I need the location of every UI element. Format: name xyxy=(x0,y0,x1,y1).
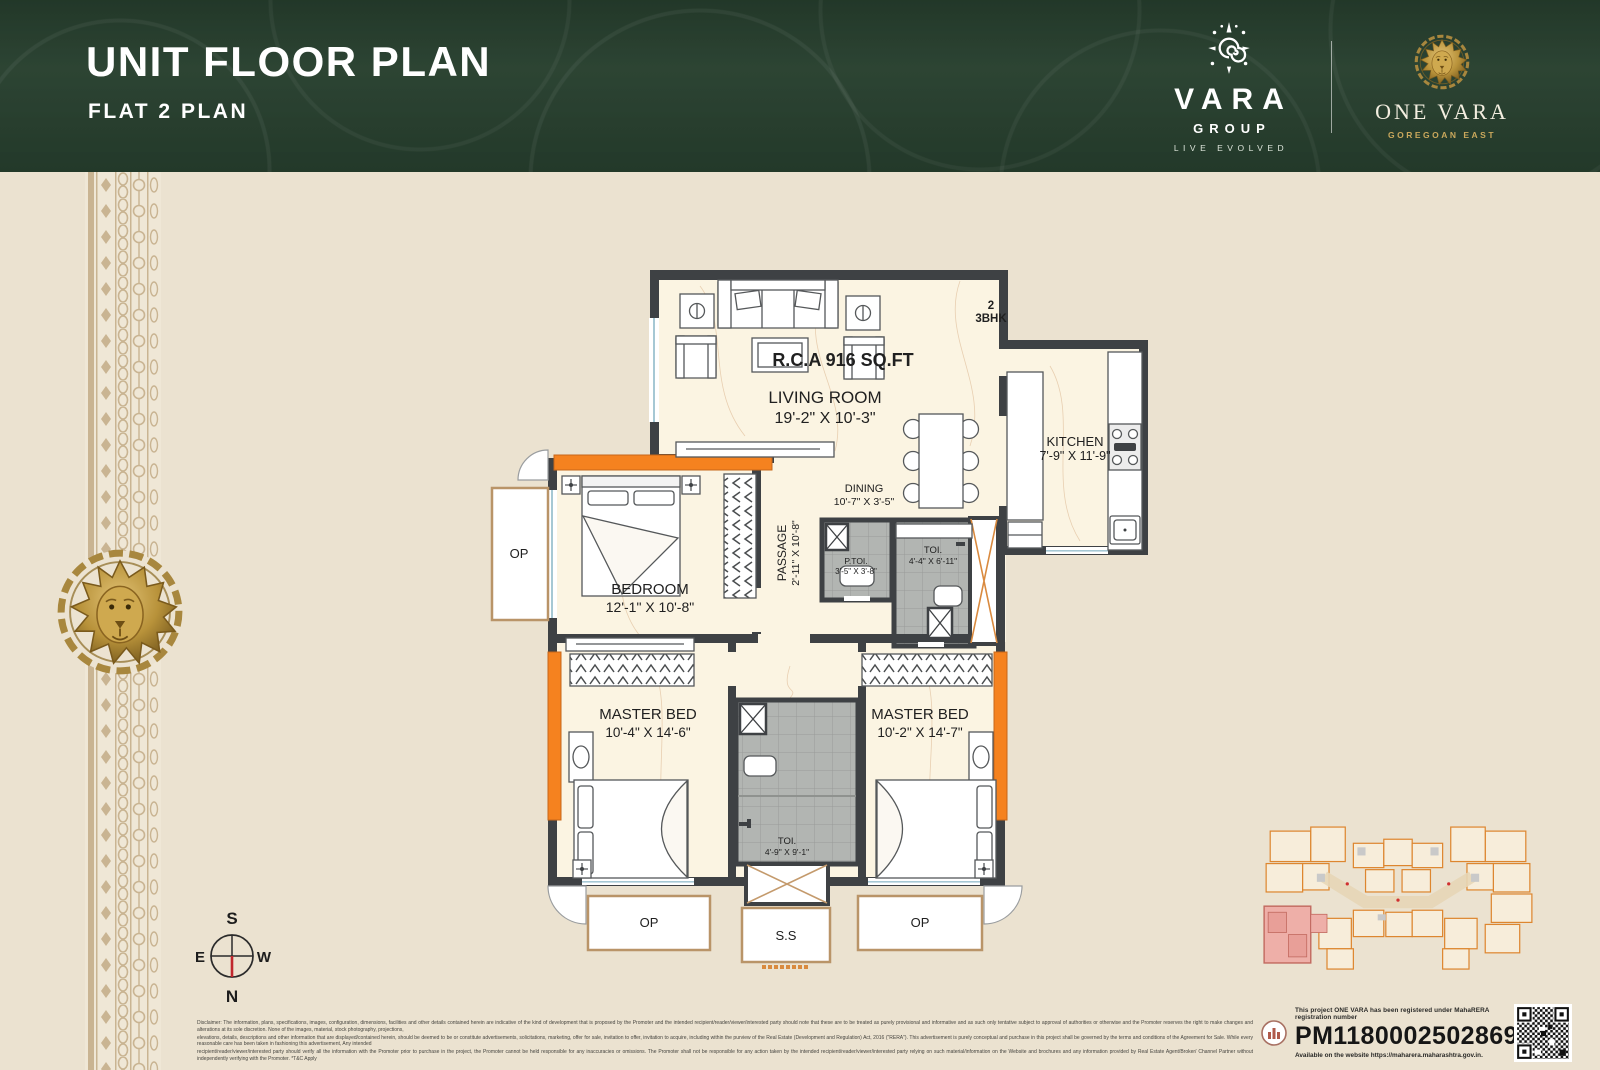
one-vara-name: ONE VARA xyxy=(1358,99,1526,125)
toi1-label: TOI. xyxy=(924,545,942,556)
compass-e: E xyxy=(195,949,205,966)
bedroom-furniture xyxy=(562,474,756,598)
ss-label: S.S xyxy=(776,928,797,943)
disclaimer-line-2: elevations, details, descriptions and ot… xyxy=(197,1035,1253,1048)
maharera-logo-icon xyxy=(1260,1019,1288,1047)
master2-dims: 10'-2" X 14'-7" xyxy=(877,725,962,740)
ptoi-label: P.TOI. xyxy=(844,556,867,566)
rera-website: Available on the website https://maharer… xyxy=(1295,1052,1507,1059)
op-left-label: OP xyxy=(640,915,659,930)
compass-s: S xyxy=(226,909,237,928)
living-room-dims: 19'-2" X 10'-3" xyxy=(774,410,875,427)
living-room-label: LIVING ROOM xyxy=(768,388,881,407)
vara-group-label: GROUP xyxy=(1153,121,1305,136)
op-right-label: OP xyxy=(911,915,930,930)
unit-type-label: 3BHK xyxy=(975,313,1007,325)
disclaimer-line-3: recipient/reader/viewer/interested party… xyxy=(197,1049,1253,1062)
unit-number-label: 2 xyxy=(988,300,994,312)
vara-spiral-icon xyxy=(1200,20,1258,76)
one-vara-logo: ONE VARA GOREGOAN EAST xyxy=(1358,34,1526,140)
disclaimer-line-1: Disclaimer: The information, plans, spec… xyxy=(197,1020,1253,1033)
brochure-page: UNIT FLOOR PLAN FLAT 2 PLAN VARA GROUP L… xyxy=(0,0,1600,1070)
sofa xyxy=(718,280,838,328)
master1-dims: 10'-4" X 14'-6" xyxy=(605,725,690,740)
rera-text-block: This project ONE VARA has been registere… xyxy=(1295,1007,1507,1059)
lion-medallion-icon xyxy=(1414,34,1470,90)
op-balcony-label: OP xyxy=(510,546,529,561)
side-table-left xyxy=(680,294,714,328)
passage-dims: 2'-11" X 10'-8" xyxy=(790,520,802,586)
master1-label: MASTER BED xyxy=(599,706,697,723)
page-subtitle: FLAT 2 PLAN xyxy=(88,100,491,124)
compass: S N E W xyxy=(190,906,274,1006)
toi1-dims: 4'-4" X 6'-11" xyxy=(909,556,957,566)
vara-name: VARA xyxy=(1153,83,1305,117)
floor-plan: 2 3BHK R.C.A 916 SQ.FT LIVING ROOM 19'-2… xyxy=(490,266,1150,978)
vara-tagline: LIVE EVOLVED xyxy=(1153,143,1305,153)
compass-n: N xyxy=(226,987,238,1006)
page-title: UNIT FLOOR PLAN xyxy=(86,38,491,86)
rca-label: R.C.A 916 SQ.FT xyxy=(772,350,913,370)
dining-dims: 10'-7" X 3'-5" xyxy=(834,496,895,508)
bedroom-label: BEDROOM xyxy=(611,581,689,598)
one-vara-location: GOREGOAN EAST xyxy=(1358,130,1526,140)
kitchen-dims: 7'-9" X 11'-9" xyxy=(1039,449,1110,463)
disclaimer: Disclaimer: The information, plans, spec… xyxy=(197,1020,1253,1064)
dining-set xyxy=(904,414,979,508)
vara-group-logo: VARA GROUP LIVE EVOLVED xyxy=(1153,20,1305,153)
toi2-dims: 4'-9" X 9'-1" xyxy=(765,847,809,857)
dining-label: DINING xyxy=(845,483,884,495)
key-plan-highlighted-unit xyxy=(1264,906,1327,963)
header: UNIT FLOOR PLAN FLAT 2 PLAN VARA GROUP L… xyxy=(0,0,1600,172)
brand-logos: VARA GROUP LIVE EVOLVED ONE VARA GOREGOA… xyxy=(1153,20,1526,153)
rera-section: This project ONE VARA has been registere… xyxy=(1260,1004,1592,1062)
compass-w: W xyxy=(257,949,272,966)
kitchen-label: KITCHEN xyxy=(1046,434,1103,449)
rera-intro: This project ONE VARA has been registere… xyxy=(1295,1007,1507,1021)
passage-label: PASSAGE xyxy=(775,525,789,581)
side-table-right xyxy=(846,296,880,330)
toi2-label: TOI. xyxy=(778,836,796,847)
rera-number: PM1180002502869, xyxy=(1295,1022,1507,1051)
bedroom-dims: 12'-1" X 10'-8" xyxy=(606,599,694,615)
ptoi-dims: 3'-5" X 3'-8" xyxy=(835,567,877,576)
master2-label: MASTER BED xyxy=(871,706,969,723)
brand-divider xyxy=(1331,41,1332,133)
lion-medallion xyxy=(56,548,184,676)
armchair-left xyxy=(676,336,716,378)
title-block: UNIT FLOOR PLAN FLAT 2 PLAN xyxy=(86,38,491,124)
key-plan xyxy=(1256,812,1540,976)
tv-console xyxy=(676,442,834,457)
qr-code xyxy=(1514,1004,1572,1062)
